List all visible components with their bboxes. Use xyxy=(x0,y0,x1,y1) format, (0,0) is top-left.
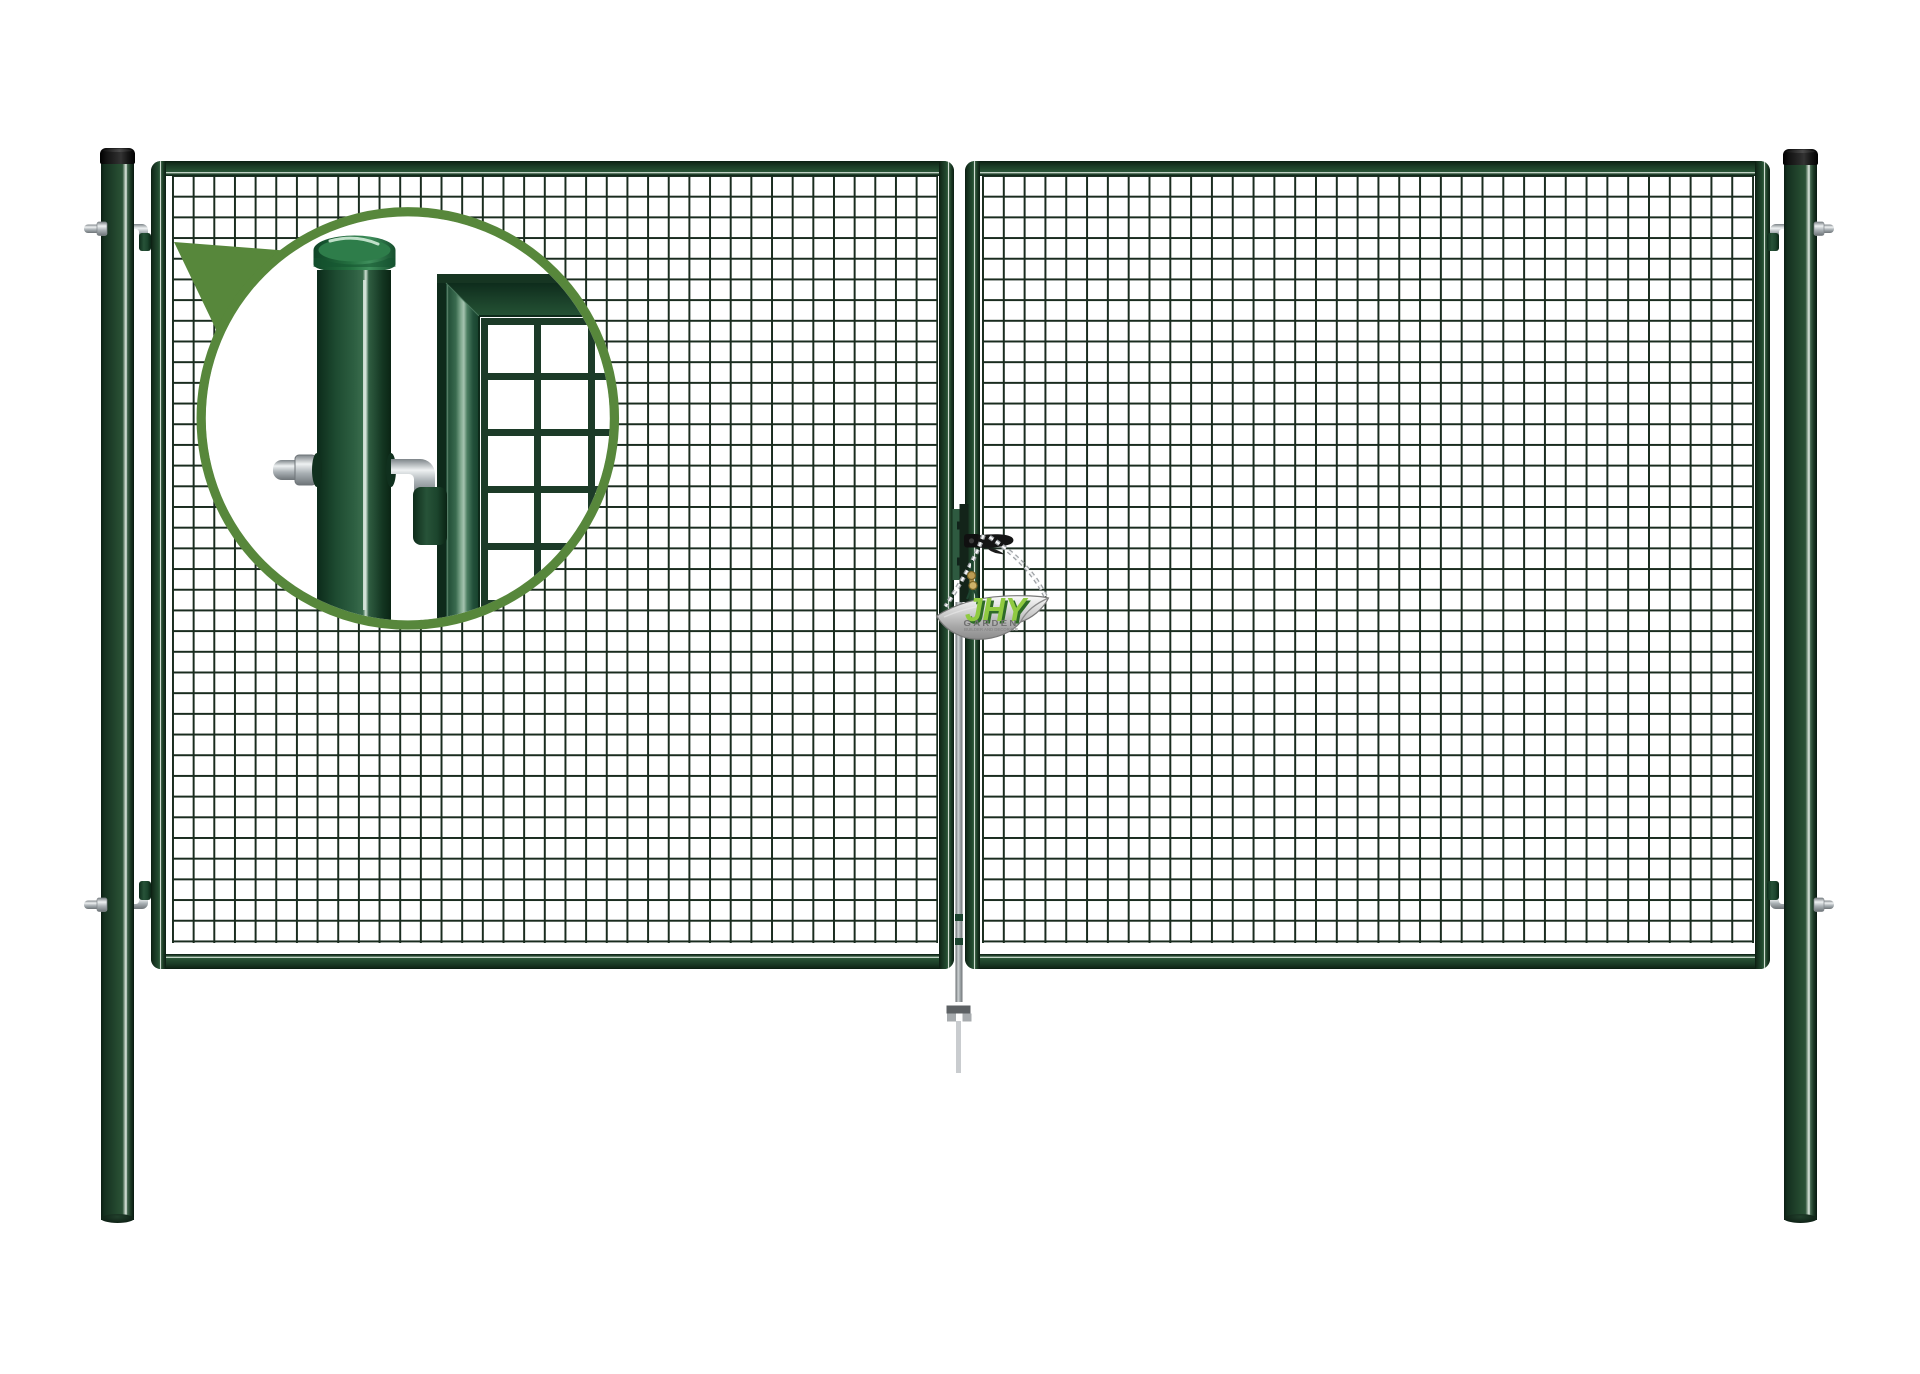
svg-text:BUILDER AND DECORATE: BUILDER AND DECORATE xyxy=(964,627,1018,632)
